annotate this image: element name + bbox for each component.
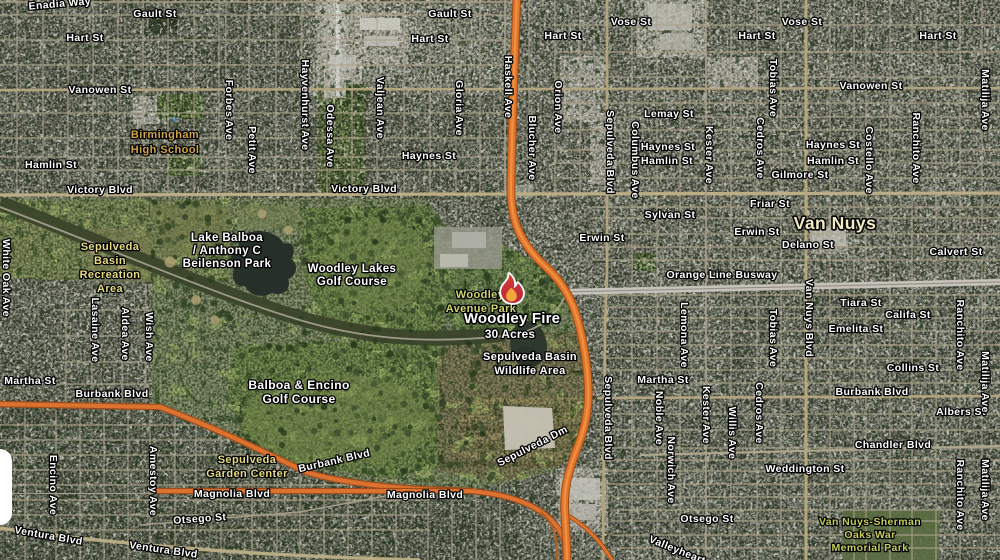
svg-text:Albers St: Albers St xyxy=(936,406,986,418)
svg-text:Columbus Ave: Columbus Ave xyxy=(629,121,641,199)
svg-text:Emelita St: Emelita St xyxy=(829,323,884,335)
svg-text:Memorial Park: Memorial Park xyxy=(832,542,909,554)
svg-text:Haynes St: Haynes St xyxy=(641,141,695,153)
svg-text:Matilija Ave: Matilija Ave xyxy=(979,351,991,413)
svg-text:Lasaine Ave: Lasaine Ave xyxy=(89,298,101,363)
svg-text:Norwich Ave: Norwich Ave xyxy=(665,436,677,503)
svg-text:Basin: Basin xyxy=(94,255,126,267)
svg-text:Noble Ave: Noble Ave xyxy=(653,391,665,445)
svg-text:Golf Course: Golf Course xyxy=(317,276,387,288)
svg-text:Haynes St: Haynes St xyxy=(402,150,456,162)
svg-text:Birmingham: Birmingham xyxy=(131,129,199,141)
svg-text:Ranchito Ave: Ranchito Ave xyxy=(954,299,966,370)
svg-text:Balboa & Encino: Balboa & Encino xyxy=(248,378,349,392)
svg-text:Califa St: Califa St xyxy=(885,309,931,321)
svg-text:Gault St: Gault St xyxy=(133,8,177,20)
svg-text:Tobias Ave: Tobias Ave xyxy=(767,59,779,117)
svg-text:Kester Ave: Kester Ave xyxy=(700,386,712,444)
svg-text:Wildlife Area: Wildlife Area xyxy=(494,365,566,377)
svg-text:Petit Ave: Petit Ave xyxy=(246,126,258,174)
svg-text:Cedros Ave: Cedros Ave xyxy=(754,117,766,179)
svg-text:Golf Course: Golf Course xyxy=(262,392,335,406)
svg-text:Vanowen St: Vanowen St xyxy=(69,84,132,96)
svg-text:Forbes Ave: Forbes Ave xyxy=(223,80,235,140)
svg-text:30 Acres: 30 Acres xyxy=(485,327,536,341)
svg-text:Woodley Lakes: Woodley Lakes xyxy=(308,263,397,275)
svg-text:Vanowen St: Vanowen St xyxy=(840,80,903,92)
svg-text:Vose St: Vose St xyxy=(782,16,823,28)
svg-text:Burbank Blvd: Burbank Blvd xyxy=(835,386,908,398)
svg-text:Tiara St: Tiara St xyxy=(840,297,882,309)
svg-text:Gloria Ave: Gloria Ave xyxy=(453,80,465,136)
svg-text:Hart St: Hart St xyxy=(919,30,956,42)
svg-text:Wish Ave: Wish Ave xyxy=(143,312,155,362)
svg-text:Vose St: Vose St xyxy=(611,16,652,28)
svg-text:Van Nuys: Van Nuys xyxy=(794,213,877,233)
svg-text:Hayvenhurst Ave: Hayvenhurst Ave xyxy=(299,59,311,150)
svg-text:Lemay St: Lemay St xyxy=(644,108,694,120)
svg-text:Recreation: Recreation xyxy=(80,269,141,281)
svg-text:Martha St: Martha St xyxy=(637,374,689,386)
svg-text:Area: Area xyxy=(97,283,124,295)
svg-text:Victory Blvd: Victory Blvd xyxy=(331,183,397,195)
svg-text:White Oak Ave: White Oak Ave xyxy=(0,239,12,317)
svg-text:Cedros Ave: Cedros Ave xyxy=(753,382,765,444)
svg-text:Matilija Ave: Matilija Ave xyxy=(979,459,991,521)
svg-text:Orion Ave: Orion Ave xyxy=(552,81,564,134)
svg-text:Lake Balboa: Lake Balboa xyxy=(191,232,263,244)
svg-text:Orange Line Busway: Orange Line Busway xyxy=(666,269,777,281)
svg-text:Ranchito Ave: Ranchito Ave xyxy=(954,459,966,530)
svg-text:Beilenson Park: Beilenson Park xyxy=(183,258,272,270)
svg-text:Woodley: Woodley xyxy=(456,289,505,301)
svg-text:Weddington St: Weddington St xyxy=(765,463,844,475)
svg-text:Kester Ave: Kester Ave xyxy=(703,126,715,184)
svg-text:Otsego St: Otsego St xyxy=(680,513,733,525)
svg-text:Hart St: Hart St xyxy=(66,32,103,44)
svg-text:Hart St: Hart St xyxy=(411,33,448,45)
svg-text:Hart St: Hart St xyxy=(544,30,581,42)
svg-text:Sepulveda Blvd: Sepulveda Blvd xyxy=(602,376,614,460)
svg-text:Magnolia Blvd: Magnolia Blvd xyxy=(194,488,270,500)
svg-text:Gilmore St: Gilmore St xyxy=(771,169,828,181)
svg-text:Sylvan St: Sylvan St xyxy=(645,209,696,221)
svg-text:Sepulveda: Sepulveda xyxy=(218,454,277,466)
svg-text:Sepulveda Basin: Sepulveda Basin xyxy=(483,351,577,363)
svg-text:Sepulveda Blvd: Sepulveda Blvd xyxy=(604,110,616,194)
svg-text:Erwin St: Erwin St xyxy=(734,226,779,238)
svg-text:Magnolia Blvd: Magnolia Blvd xyxy=(387,489,463,501)
svg-text:Erwin St: Erwin St xyxy=(579,232,624,244)
svg-text:Delano St: Delano St xyxy=(782,239,834,251)
svg-text:Odessa Ave: Odessa Ave xyxy=(324,104,336,167)
svg-text:Aldea Ave: Aldea Ave xyxy=(119,307,131,361)
svg-text:Victory Blvd: Victory Blvd xyxy=(67,184,133,196)
svg-text:Haskell Ave: Haskell Ave xyxy=(502,56,514,119)
svg-text:Calvert St: Calvert St xyxy=(929,246,982,258)
svg-text:High School: High School xyxy=(131,144,200,156)
svg-text:Van Nuys Blvd: Van Nuys Blvd xyxy=(803,279,815,357)
svg-text:Hamlin St: Hamlin St xyxy=(25,159,77,171)
svg-text:Ranchito Ave: Ranchito Ave xyxy=(910,112,922,183)
svg-text:Van Nuys-Sherman: Van Nuys-Sherman xyxy=(819,516,921,528)
svg-text:Willis Ave: Willis Ave xyxy=(726,407,738,460)
svg-text:Garden Center: Garden Center xyxy=(206,468,288,480)
svg-text:Haynes St: Haynes St xyxy=(806,139,860,151)
svg-text:Martha St: Martha St xyxy=(4,375,56,387)
svg-text:Avenue Park: Avenue Park xyxy=(446,303,517,315)
svg-text:Costello Ave: Costello Ave xyxy=(863,126,875,194)
svg-text:/ Anthony C: / Anthony C xyxy=(193,245,262,257)
svg-text:Hamlin St: Hamlin St xyxy=(807,155,859,167)
svg-text:Sepulveda: Sepulveda xyxy=(81,241,140,253)
svg-text:Burbank Blvd: Burbank Blvd xyxy=(75,388,148,400)
svg-text:Tobias Ave: Tobias Ave xyxy=(767,309,779,367)
svg-text:Matilija Ave: Matilija Ave xyxy=(979,69,991,131)
svg-text:Valjean Ave: Valjean Ave xyxy=(374,77,386,139)
svg-text:Gault St: Gault St xyxy=(428,8,472,20)
svg-text:Encino Ave: Encino Ave xyxy=(47,455,59,515)
svg-text:Lemona Ave: Lemona Ave xyxy=(678,302,690,368)
svg-text:Friar St: Friar St xyxy=(750,198,790,210)
svg-text:Chandler Blvd: Chandler Blvd xyxy=(855,439,931,451)
svg-text:Oaks War: Oaks War xyxy=(844,529,895,541)
svg-text:Amestoy Ave: Amestoy Ave xyxy=(147,446,159,516)
svg-text:Blucher Ave: Blucher Ave xyxy=(526,116,538,181)
svg-text:Hart St: Hart St xyxy=(738,30,775,42)
svg-text:Hamlin St: Hamlin St xyxy=(641,155,693,167)
svg-text:Collins St: Collins St xyxy=(887,362,940,374)
